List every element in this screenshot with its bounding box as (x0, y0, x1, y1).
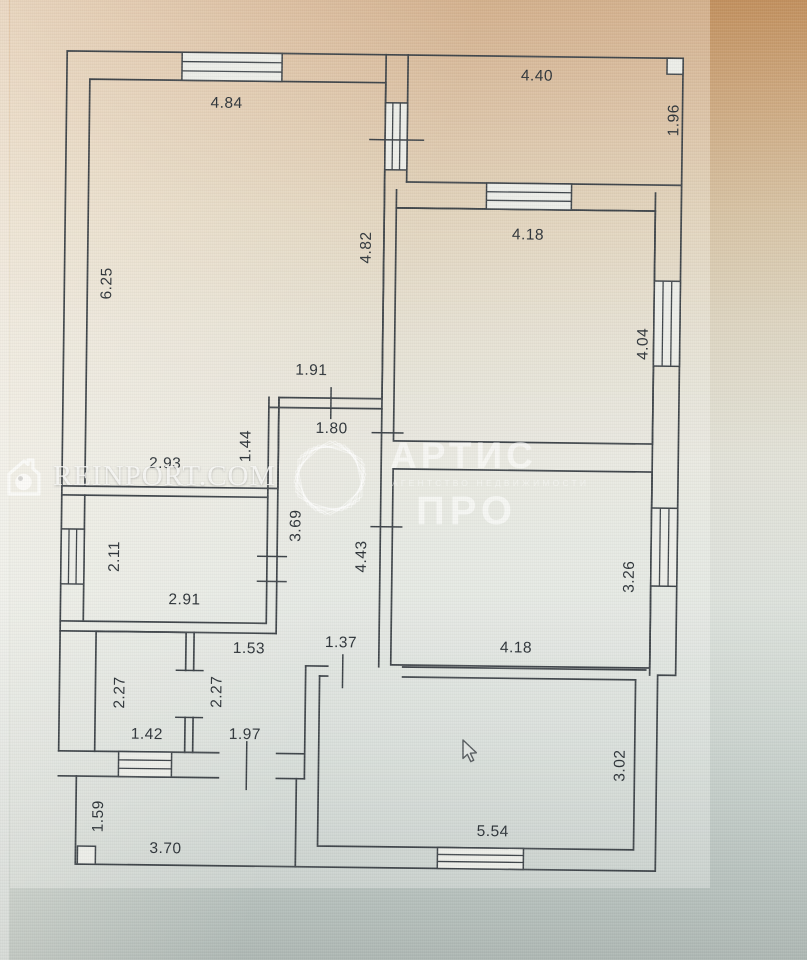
artis-watermark-suffix: ПРО (416, 489, 517, 534)
dimension-label-1.53: 1.53 (233, 640, 265, 657)
dimension-label-1.91: 1.91 (295, 362, 327, 379)
artis-watermark-name: АРТИС (390, 435, 537, 477)
dimension-label-1.97: 1.97 (229, 726, 261, 743)
dimension-label-6.25: 6.25 (98, 267, 115, 299)
window-icon (651, 508, 678, 586)
window-icon (61, 529, 85, 584)
dimension-label-4.82: 4.82 (358, 231, 375, 263)
dimension-label-5.54: 5.54 (477, 823, 509, 840)
dimension-label-4.18: 4.18 (500, 639, 532, 656)
reinport-watermark: REINPORT.COM (2, 452, 276, 500)
window-icon (437, 847, 523, 869)
window-icon (182, 52, 282, 81)
window-icon (118, 752, 171, 778)
dimension-label-1.96: 1.96 (665, 104, 682, 136)
dimension-label-2.91: 2.91 (168, 591, 200, 608)
window-icon (486, 183, 571, 210)
dimension-label-4.40: 4.40 (521, 67, 553, 84)
dimension-label-2.27: 2.27 (111, 676, 128, 708)
house-camera-icon (2, 452, 50, 500)
corner-pillar (667, 58, 683, 74)
dimension-label-4.43: 4.43 (353, 540, 370, 572)
dimension-label-2.27: 2.27 (208, 676, 225, 708)
dimension-label-1.59: 1.59 (90, 800, 107, 832)
dimension-label-4.04: 4.04 (634, 328, 651, 360)
reinport-watermark-text: REINPORT.COM (53, 460, 276, 493)
dimension-label-1.37: 1.37 (325, 634, 357, 651)
window-icon (385, 103, 408, 170)
mouse-cursor-icon (458, 737, 484, 767)
screenshot-stage: 4.844.401.966.254.824.184.041.911.801.44… (0, 0, 807, 960)
dimension-label-4.18: 4.18 (512, 226, 544, 243)
dimension-label-1.42: 1.42 (131, 726, 163, 743)
dimension-label-2.11: 2.11 (106, 541, 123, 572)
hexagon-spirograph-logo (278, 432, 388, 542)
artis-watermark-tagline: АГЕНТСТВО НЕДВИЖИМОСТИ (392, 478, 589, 488)
dimension-label-3.02: 3.02 (611, 749, 628, 781)
dimension-label-3.26: 3.26 (621, 561, 638, 593)
corner-pillar (77, 846, 95, 864)
dimension-label-4.84: 4.84 (210, 95, 242, 112)
window-icon (653, 281, 680, 366)
dimension-label-3.70: 3.70 (149, 840, 181, 857)
